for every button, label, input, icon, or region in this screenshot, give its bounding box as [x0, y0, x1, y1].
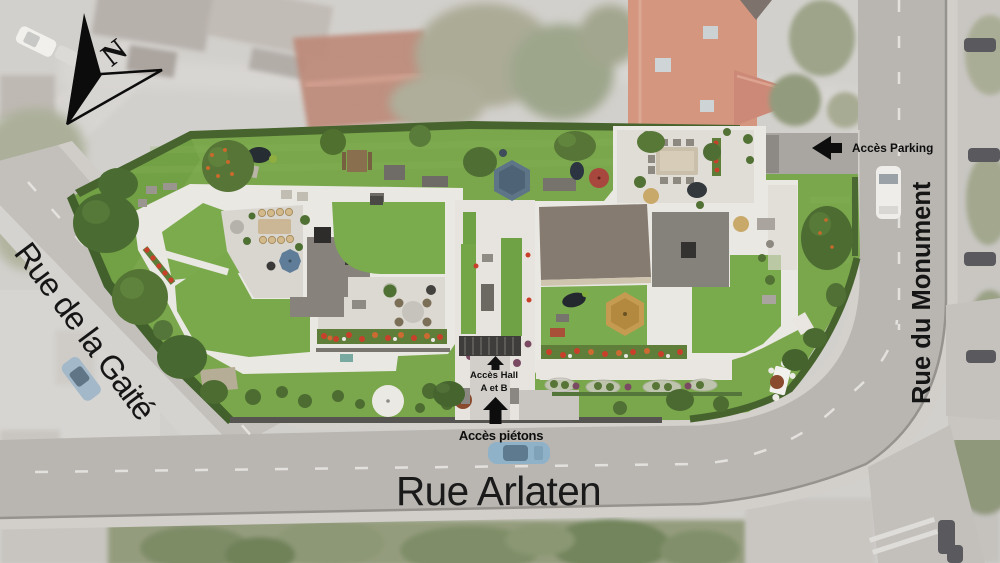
- svg-text:A et B: A et B: [480, 383, 507, 394]
- svg-text:Accès piétons: Accès piétons: [459, 428, 543, 443]
- svg-text:Accès Parking: Accès Parking: [852, 141, 933, 155]
- svg-text:Accès Hall: Accès Hall: [470, 370, 518, 381]
- svg-text:Rue Arlaten: Rue Arlaten: [396, 468, 601, 514]
- svg-text:Rue du Monument: Rue du Monument: [908, 181, 936, 404]
